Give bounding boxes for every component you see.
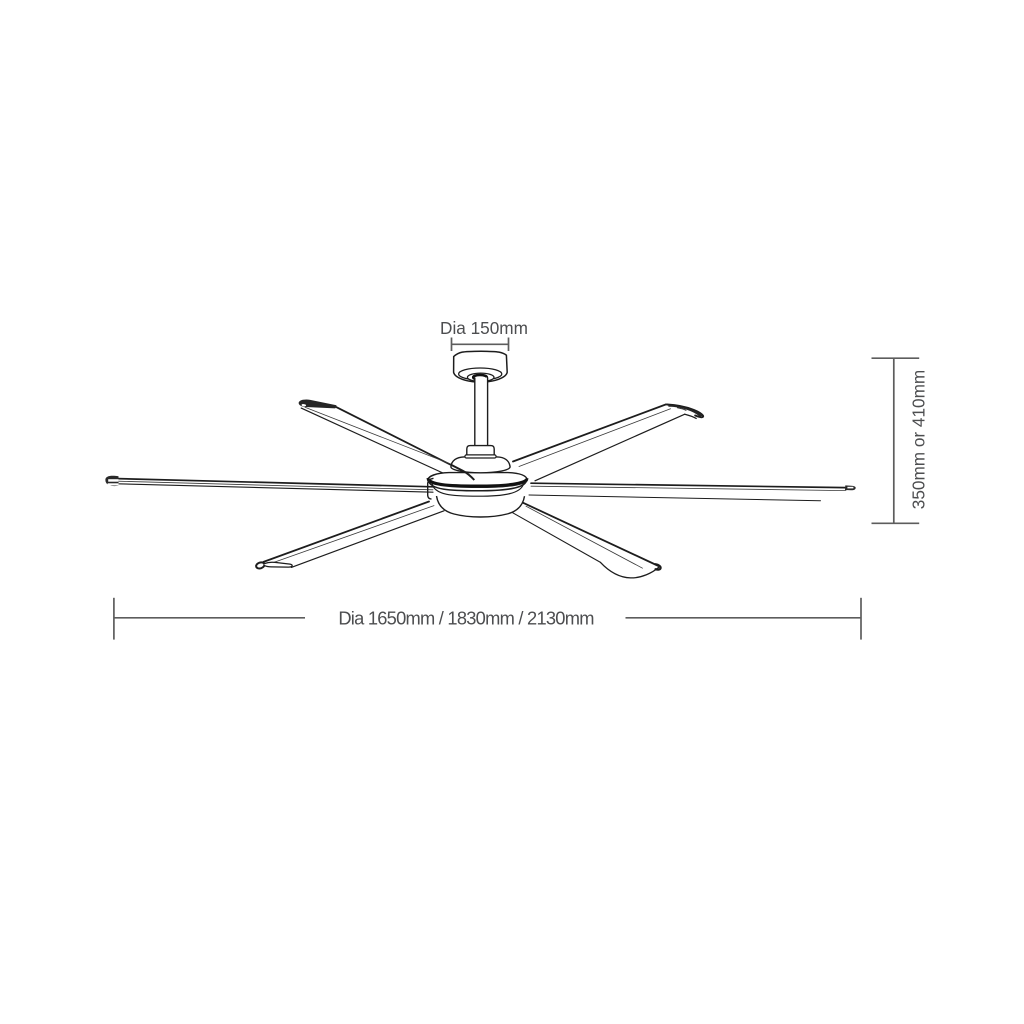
svg-text:350mm or 410mm: 350mm or 410mm	[909, 370, 929, 509]
svg-text:Dia 150mm: Dia 150mm	[440, 318, 528, 338]
svg-text:Dia 1650mm / 1830mm / 2130mm: Dia 1650mm / 1830mm / 2130mm	[338, 608, 594, 629]
